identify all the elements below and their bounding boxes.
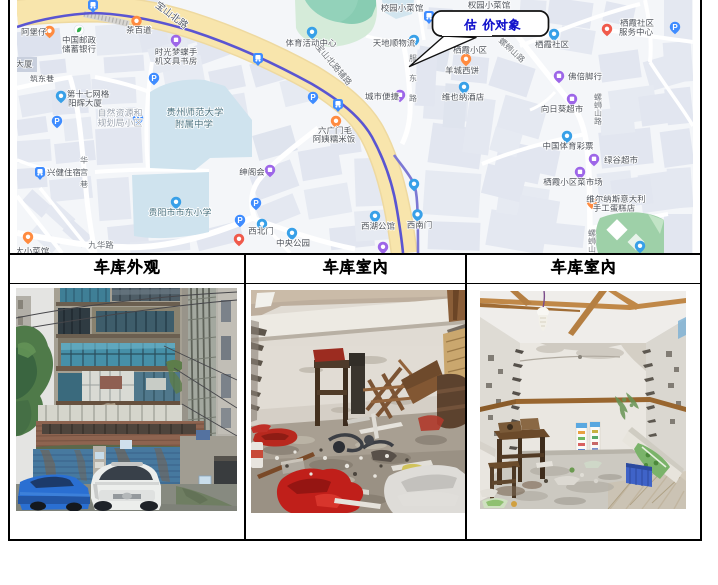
svg-text:P: P — [151, 74, 157, 83]
svg-text:P: P — [310, 93, 316, 102]
svg-text:P: P — [237, 216, 243, 225]
svg-text:P: P — [54, 117, 60, 126]
svg-text:P: P — [253, 199, 259, 208]
svg-text:P: P — [672, 23, 678, 32]
